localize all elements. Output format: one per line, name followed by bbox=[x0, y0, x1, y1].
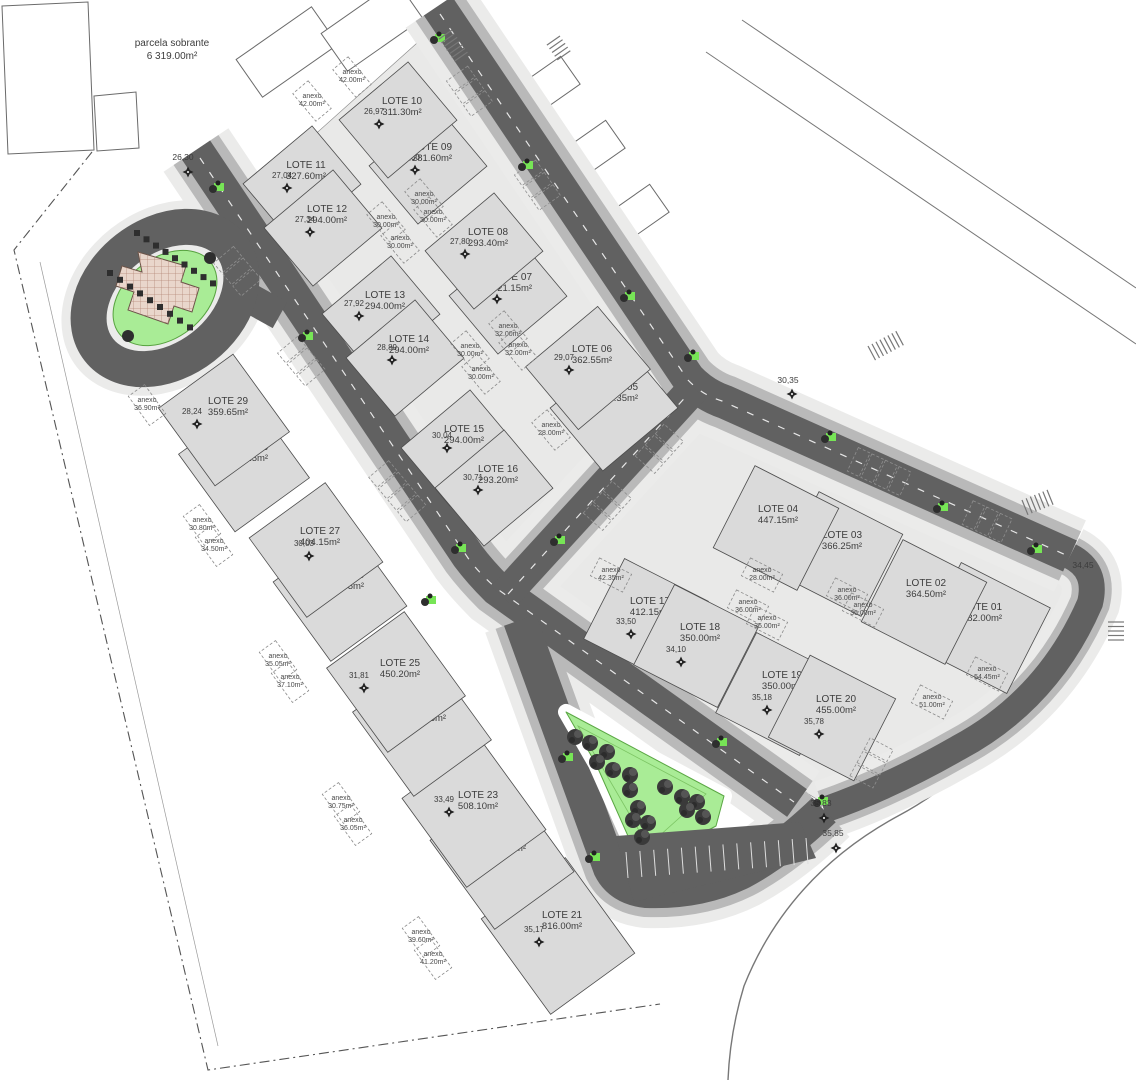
lot-label: LOTE 18 bbox=[680, 622, 720, 633]
anexo-label: anexo bbox=[738, 599, 757, 606]
hedge-icon bbox=[167, 311, 173, 317]
lot-label: LOTE 19 bbox=[762, 670, 802, 681]
tree-icon bbox=[605, 762, 621, 778]
lot-width-label: 30,03 bbox=[294, 539, 315, 548]
anexo-annotation: anexo36.05m² bbox=[334, 805, 371, 846]
anexo-label: anexo bbox=[471, 366, 490, 373]
dimension-label: 26,30 bbox=[172, 152, 194, 162]
hedge-icon bbox=[147, 297, 153, 303]
lot-width-label: 34,10 bbox=[666, 645, 687, 654]
lot-label: LOTE 04 bbox=[758, 504, 798, 515]
hedge-icon bbox=[153, 243, 159, 249]
anexo-area-label: 34.50m² bbox=[201, 546, 227, 553]
lot-area-label: 362.55m² bbox=[572, 355, 612, 366]
anexo-area-label: 32.00m² bbox=[505, 350, 531, 357]
anexo-label: anexo bbox=[423, 209, 442, 216]
dimension-label: 35,83 bbox=[810, 798, 832, 808]
tree-icon bbox=[622, 782, 638, 798]
anexo-area-label: 36.90m² bbox=[134, 405, 160, 412]
lot-label: LOTE 10 bbox=[382, 96, 422, 107]
lot-width-label: 27,80 bbox=[450, 237, 471, 246]
tree-icon bbox=[634, 829, 650, 845]
dimension-label: 30,35 bbox=[777, 375, 799, 385]
anexo-label: anexo bbox=[343, 817, 362, 824]
lot-width-label: 31,81 bbox=[349, 671, 370, 680]
anexo-area-label: 30.00m² bbox=[457, 351, 483, 358]
hedge-icon bbox=[134, 230, 140, 236]
anexo-area-label: 28.00m² bbox=[538, 430, 564, 437]
anexo-label: anexo bbox=[853, 602, 872, 609]
hedge-icon bbox=[127, 284, 133, 290]
parcela-sobrante-note: parcela sobrante 6 319.00m² bbox=[135, 38, 210, 62]
lot-label: LOTE 11 bbox=[286, 160, 326, 171]
lot-label: LOTE 13 bbox=[365, 290, 405, 301]
hedge-icon bbox=[137, 290, 143, 296]
tree-icon bbox=[625, 812, 641, 828]
lot-label: LOTE 29 bbox=[208, 396, 248, 407]
lot-width-label: 35,17 bbox=[524, 925, 545, 934]
lot-width-label: 27,92 bbox=[344, 299, 365, 308]
lot-width-label: 28,24 bbox=[182, 407, 203, 416]
tree-icon bbox=[204, 252, 216, 264]
anexo-area-label: 30.00m² bbox=[468, 374, 494, 381]
anexo-label: anexo bbox=[922, 694, 941, 701]
lot-label: LOTE 25 bbox=[380, 658, 420, 669]
anexo-area-label: 36.05m² bbox=[340, 825, 366, 832]
tree-icon bbox=[657, 779, 673, 795]
tree-icon bbox=[695, 809, 711, 825]
anexo-label: anexo bbox=[757, 615, 776, 622]
lot-area-label: 816.00m² bbox=[542, 921, 582, 932]
lot-label: LOTE 21 bbox=[542, 910, 582, 921]
anexo-label: anexo bbox=[390, 235, 409, 242]
anexo-area-label: 41.20m² bbox=[420, 959, 446, 966]
lot-label: LOTE 16 bbox=[478, 464, 518, 475]
anexo-annotation: anexo41.20m² bbox=[414, 939, 451, 980]
anexo-label: anexo bbox=[508, 342, 527, 349]
hedge-icon bbox=[107, 270, 113, 276]
anexo-label: anexo bbox=[302, 93, 321, 100]
lot-area-label: 293.40m² bbox=[468, 238, 508, 249]
crosswalk-hatch bbox=[868, 331, 903, 360]
parcela-sobrante-area: 6 319.00m² bbox=[147, 51, 198, 62]
lot-label: LOTE 08 bbox=[468, 227, 508, 238]
lot-width-label: 27,04 bbox=[272, 171, 293, 180]
anexo-area-label: 36.00m² bbox=[735, 607, 761, 614]
anexo-label: anexo bbox=[498, 323, 517, 330]
lot-area-label: 350.00m² bbox=[680, 633, 720, 644]
lot-width-label: 33,50 bbox=[616, 617, 637, 626]
lot-label: LOTE 12 bbox=[307, 204, 347, 215]
lot-width-label: 27,34 bbox=[295, 215, 316, 224]
lot-width-label: 30,04 bbox=[432, 431, 453, 440]
anexo-area-label: 42.35m² bbox=[598, 575, 624, 582]
tree-icon bbox=[679, 802, 695, 818]
tree-icon bbox=[589, 754, 605, 770]
hedge-icon bbox=[187, 324, 193, 330]
anexo-label: anexo bbox=[601, 567, 620, 574]
street-green-icon bbox=[421, 594, 436, 607]
anexo-area-label: 42.00m² bbox=[299, 101, 325, 108]
anexo-area-label: 37.10m² bbox=[277, 682, 303, 689]
dimension-label: 34,45 bbox=[1072, 560, 1094, 570]
lot-width-label: 35,18 bbox=[752, 693, 773, 702]
lot-area-label: 366.25m² bbox=[822, 541, 862, 552]
tree-icon bbox=[622, 767, 638, 783]
lot-area-label: 455.00m² bbox=[816, 705, 856, 716]
lot-label: LOTE 02 bbox=[906, 578, 946, 589]
hedge-icon bbox=[172, 255, 178, 261]
tree-icon bbox=[122, 330, 134, 342]
tree-icon bbox=[582, 735, 598, 751]
lot-width-label: 30,71 bbox=[463, 473, 484, 482]
hedge-icon bbox=[117, 277, 123, 283]
lot-label: LOTE 20 bbox=[816, 694, 856, 705]
lot-label: LOTE 27 bbox=[300, 526, 340, 537]
hedge-icon bbox=[191, 268, 197, 274]
lot-area-label: 293.20m² bbox=[478, 475, 518, 486]
lot-area-label: 508.10m² bbox=[458, 801, 498, 812]
crosswalk-hatch bbox=[547, 36, 570, 60]
anexo-annotation: anexo42.00m² bbox=[293, 81, 331, 121]
hedge-icon bbox=[163, 249, 169, 255]
lot-label: LOTE 03 bbox=[822, 530, 862, 541]
tree-icon bbox=[567, 729, 583, 745]
lot-area-label: 359.65m² bbox=[208, 407, 248, 418]
hedge-icon bbox=[157, 304, 163, 310]
parcela-sobrante-label: parcela sobrante bbox=[135, 38, 210, 49]
dimension-label: 35,85 bbox=[822, 828, 844, 838]
anexo-label: anexo bbox=[342, 69, 361, 76]
anexo-label: anexo bbox=[752, 567, 771, 574]
anexo-area-label: 36.00m² bbox=[754, 623, 780, 630]
anexo-area-label: 54.45m² bbox=[974, 674, 1000, 681]
anexo-label: anexo bbox=[331, 795, 350, 802]
hedge-icon bbox=[201, 274, 207, 280]
lot-area-label: 311.30m² bbox=[382, 107, 421, 118]
lot-width-label: 29,07 bbox=[554, 353, 575, 362]
lot-width-label: 35,78 bbox=[804, 717, 825, 726]
anexo-label: anexo bbox=[541, 422, 560, 429]
hedge-icon bbox=[177, 318, 183, 324]
lot-label: LOTE 23 bbox=[458, 790, 498, 801]
lot-label: LOTE 06 bbox=[572, 344, 612, 355]
anexo-label: anexo bbox=[192, 517, 211, 524]
lot-area-label: 364.50m² bbox=[906, 589, 946, 600]
lot-width-label: 28,89 bbox=[377, 343, 398, 352]
lot-area-label: 450.20m² bbox=[380, 669, 420, 680]
anexo-label: anexo bbox=[204, 538, 223, 545]
anexo-area-label: 28.00m² bbox=[749, 575, 775, 582]
anexo-area-label: 36.00m² bbox=[850, 610, 876, 617]
lot-area-label: 447.15m² bbox=[758, 515, 798, 526]
tree-icon bbox=[640, 815, 656, 831]
anexo-label: anexo bbox=[280, 674, 299, 681]
anexo-area-label: 42.00m² bbox=[339, 77, 365, 84]
anexo-label: anexo bbox=[411, 929, 430, 936]
anexo-label: anexo bbox=[460, 343, 479, 350]
avenue-line bbox=[706, 52, 1136, 344]
anexo-label: anexo bbox=[837, 587, 856, 594]
anexo-label: anexo bbox=[423, 951, 442, 958]
site-plan: LOTE 01482.00m²LOTE 02364.50m²LOTE 03366… bbox=[0, 0, 1136, 1080]
hedge-icon bbox=[182, 262, 188, 268]
hedge-icon bbox=[144, 236, 150, 242]
anexo-label: anexo bbox=[977, 666, 996, 673]
anexo-label: anexo bbox=[268, 653, 287, 660]
hedge-icon bbox=[210, 280, 216, 286]
anexo-label: anexo bbox=[414, 191, 433, 198]
lot-width-label: 26,97 bbox=[364, 107, 385, 116]
anexo-area-label: 30.00m² bbox=[387, 243, 413, 250]
avenue-line bbox=[742, 20, 1136, 288]
lot-area-label: 294.00m² bbox=[365, 301, 405, 312]
anexo-label: anexo bbox=[137, 397, 156, 404]
anexo-area-label: 30.00m² bbox=[420, 217, 446, 224]
anexo-label: anexo bbox=[376, 214, 395, 221]
anexo-area-label: 51.00m² bbox=[919, 702, 945, 709]
lot-width-label: 33,49 bbox=[434, 795, 455, 804]
